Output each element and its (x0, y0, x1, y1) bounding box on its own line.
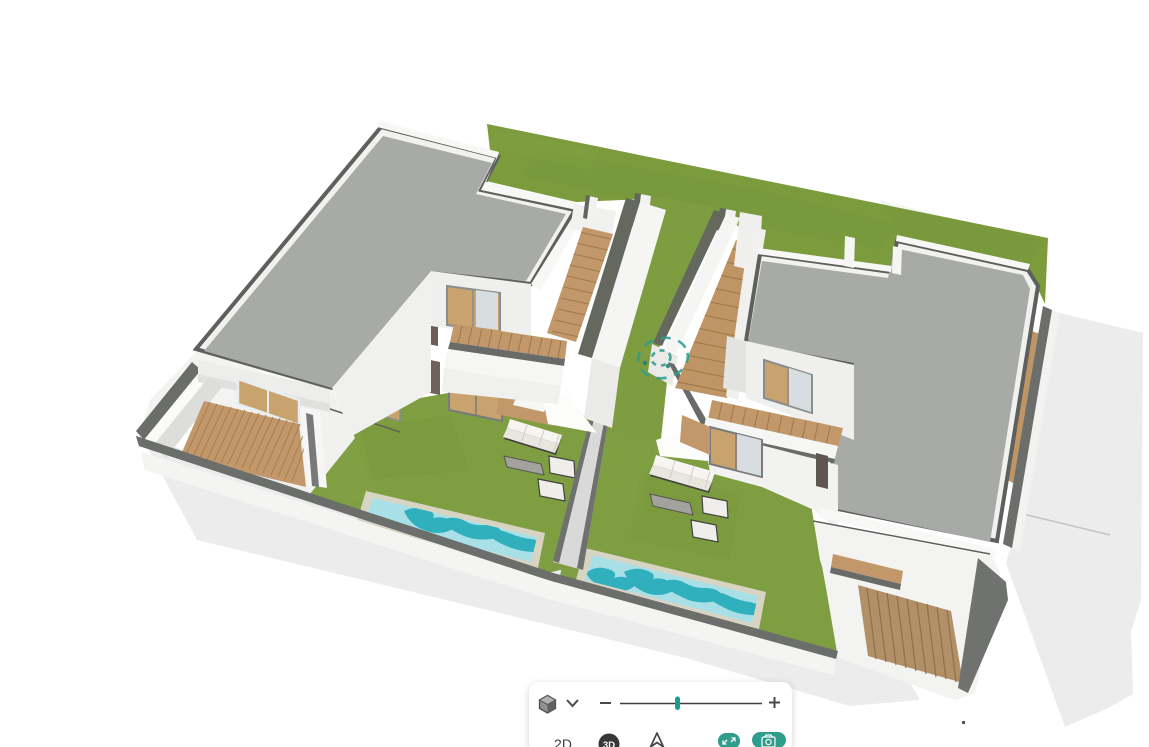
svg-text:2D: 2D (554, 736, 572, 747)
svg-text:3D: 3D (603, 740, 615, 747)
